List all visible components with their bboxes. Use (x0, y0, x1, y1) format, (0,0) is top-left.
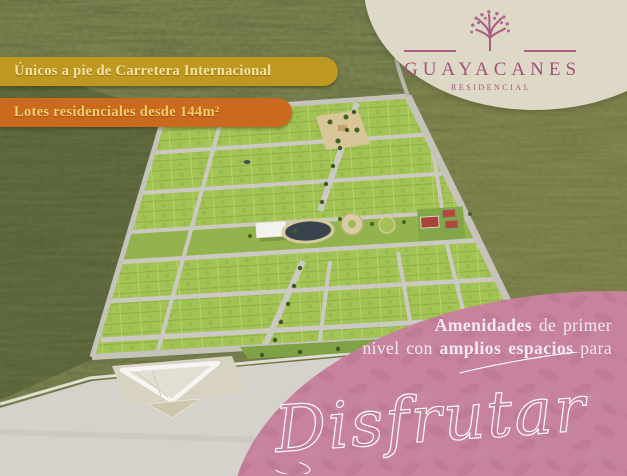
sports-courts (417, 207, 465, 242)
promo-script: Disfrutar (266, 352, 626, 474)
logo-divider-right (524, 50, 576, 52)
script-flourish-crossbar (458, 352, 617, 373)
logo-divider-left (404, 50, 456, 52)
promo-line-1: Amenidades de primer (363, 314, 613, 337)
brand-tagline: RESIDENCIAL (400, 83, 582, 92)
banner-lots-label: Lotes residenciales desde 144m² (14, 104, 220, 121)
flyer-canvas: Únicos a pie de Carretera Internacional … (0, 0, 627, 476)
promo-line1-bold: Amenidades (435, 315, 532, 335)
brand-name: GUAYACANES (403, 59, 582, 81)
banner-lots: Lotes residenciales desde 144m² (0, 98, 292, 127)
banner-highway: Únicos a pie de Carretera Internacional (0, 57, 338, 86)
promo-script-word: Disfrutar (271, 372, 590, 468)
clubhouse (256, 221, 287, 238)
promo-line1-rest: de primer (532, 315, 612, 335)
logo: GUAYACANES RESIDENCIAL (398, 8, 582, 92)
tree-icon (467, 8, 513, 56)
banner-highway-label: Únicos a pie de Carretera Internacional (14, 63, 272, 80)
car (244, 160, 251, 164)
